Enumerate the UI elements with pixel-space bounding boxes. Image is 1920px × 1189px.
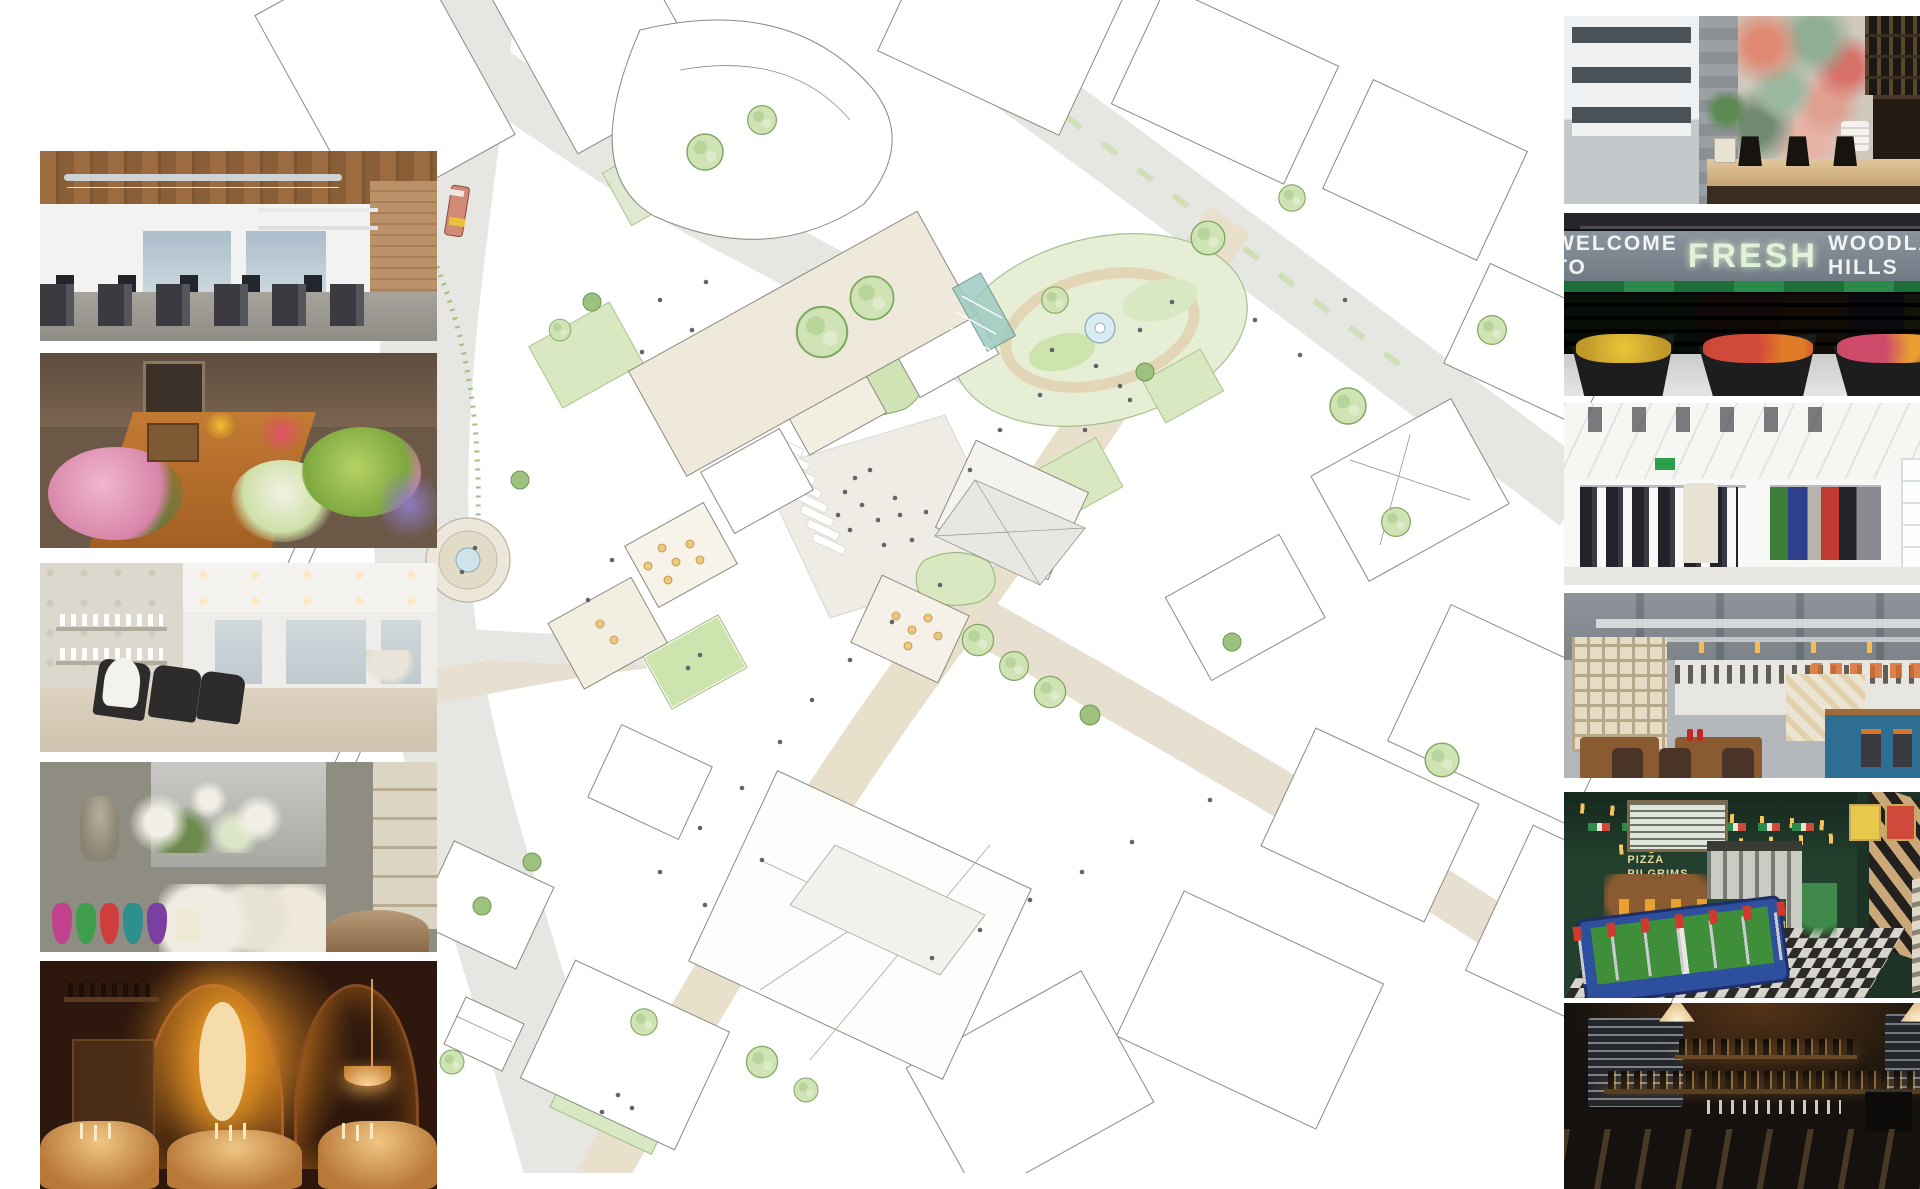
salon-ceiling-downlights	[183, 563, 437, 612]
boutique-side-table	[326, 910, 429, 952]
photo-fashion-boutique	[1564, 403, 1920, 585]
cream-coat	[1683, 483, 1719, 563]
restaurant-table	[40, 1121, 159, 1189]
glass-vase-teal	[123, 903, 143, 945]
backlit-oval-art	[199, 1002, 247, 1121]
salon-window	[286, 620, 365, 684]
bar-stool	[1893, 729, 1913, 767]
dark-wood-bar-counter	[1564, 1129, 1920, 1189]
diner-chair	[1722, 748, 1754, 778]
salon-flower-vase	[366, 650, 414, 699]
bananas-display	[1576, 334, 1671, 363]
photo-dark-bar	[1564, 1003, 1920, 1189]
bar-equipment	[1865, 1089, 1913, 1133]
coloured-dress-rack	[1770, 487, 1881, 560]
photo-industrial-diner	[1564, 593, 1920, 778]
cream-candle	[175, 910, 199, 940]
sign-welcome-to: WELCOME TO	[1564, 232, 1678, 280]
photo-games-room: PIZZA PILGRIMS	[1564, 792, 1920, 998]
restaurant-table	[167, 1130, 302, 1189]
office-duct	[64, 174, 342, 181]
bottle-shelf	[64, 997, 159, 1002]
spirits-shelf-bottles	[1679, 1039, 1853, 1055]
glass-vase-green	[76, 903, 96, 945]
tomato-citrus-display	[1703, 334, 1814, 363]
glass-vase-red	[100, 903, 120, 945]
beer-taps	[1707, 1100, 1842, 1114]
sign-woodland-hills: WOODLAND HILLS	[1828, 232, 1920, 280]
hanging-bulbs	[1643, 641, 1920, 653]
boutique-floor	[1564, 567, 1920, 585]
mixed-fruit-display	[1837, 334, 1920, 363]
pendant-cord	[371, 979, 373, 1070]
fresh-market-sign: WELCOME TO FRESH WOODLAND HILLS	[1564, 231, 1920, 280]
spirits-shelf	[1675, 1055, 1857, 1059]
boutique-white-flowers	[119, 777, 318, 853]
photo-hair-salon	[40, 563, 437, 752]
exit-sign	[1655, 458, 1675, 471]
photo-fresh-market: WELCOME TO FRESH WOODLAND HILLS	[1564, 213, 1920, 396]
wine-glasses	[80, 1123, 83, 1139]
potted-plant	[1802, 883, 1838, 961]
photo-florist-shop	[40, 353, 437, 548]
boutique-bust-sculpture	[80, 796, 120, 861]
street-building-windows	[1572, 27, 1691, 136]
circular-plaza	[426, 518, 510, 602]
black-pitcher	[1786, 136, 1810, 166]
presentation-board: WELCOME TO FRESH WOODLAND HILLS	[0, 0, 1920, 1173]
high-rail-garments	[1588, 407, 1826, 432]
glass-cube-shelving	[1901, 458, 1920, 567]
menu-card	[1714, 138, 1736, 163]
wine-glasses	[342, 1123, 345, 1139]
photo-office-interior	[40, 151, 437, 341]
wall-poster	[1885, 804, 1917, 841]
flower-bucket-purple	[381, 466, 437, 544]
metal-duct	[1596, 619, 1920, 628]
stair-steps	[1912, 868, 1920, 993]
photo-coffee-bar	[1564, 16, 1920, 204]
bar-stool	[1861, 729, 1881, 767]
wooden-crate	[147, 423, 199, 462]
ketchup-bottles	[1687, 729, 1693, 741]
coffee-shelf-bottles	[1865, 16, 1920, 95]
black-pitcher	[1738, 136, 1762, 166]
breeze-block-screen	[1572, 637, 1667, 752]
salon-wash-chair	[196, 670, 246, 725]
photo-brick-restaurant	[40, 961, 437, 1189]
glass-vase-pink	[52, 903, 72, 945]
diner-chair	[1612, 748, 1644, 778]
restaurant-table	[318, 1121, 437, 1189]
salon-wash-chair	[148, 664, 203, 723]
salon-product-bottles	[60, 614, 163, 626]
black-pitcher	[1833, 136, 1857, 166]
sign-fresh: FRESH	[1688, 237, 1818, 276]
office-pendant-light	[258, 208, 378, 212]
salon-shelf	[56, 627, 167, 631]
diner-chair	[1659, 748, 1691, 778]
lighting-track	[1580, 226, 1920, 229]
boutique-china-cabinet	[373, 762, 437, 929]
sunflowers	[203, 412, 239, 439]
bottle-row	[68, 983, 155, 997]
wine-glasses	[215, 1123, 218, 1139]
chalkboard-menu-left	[1588, 1018, 1683, 1107]
wall-poster	[1849, 804, 1881, 841]
counter-plant	[1703, 91, 1751, 140]
flower-bucket-red	[258, 412, 306, 455]
aisle-header-band	[1564, 281, 1920, 292]
photo-decor-boutique	[40, 762, 437, 952]
back-bar-bottles	[1608, 1071, 1917, 1089]
office-desks	[40, 284, 381, 326]
